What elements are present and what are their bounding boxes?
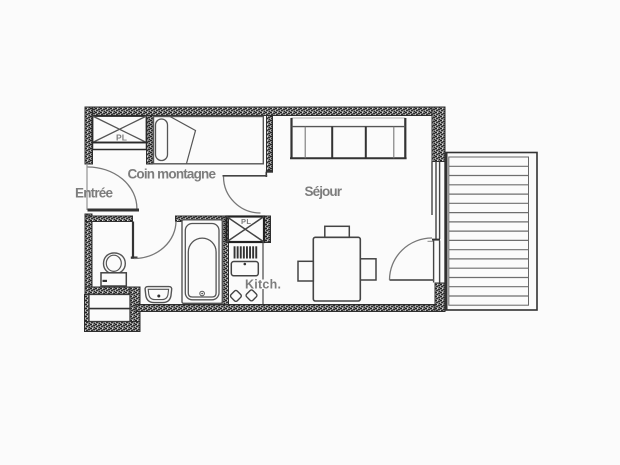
svg-text:Coin montagne: Coin montagne [128, 167, 217, 182]
svg-text:PL: PL [241, 217, 251, 226]
svg-text:Entrée: Entrée [75, 186, 113, 201]
svg-text:Séjour: Séjour [305, 184, 343, 199]
svg-text:Kitch.: Kitch. [245, 278, 281, 292]
svg-text:PL: PL [116, 133, 127, 143]
